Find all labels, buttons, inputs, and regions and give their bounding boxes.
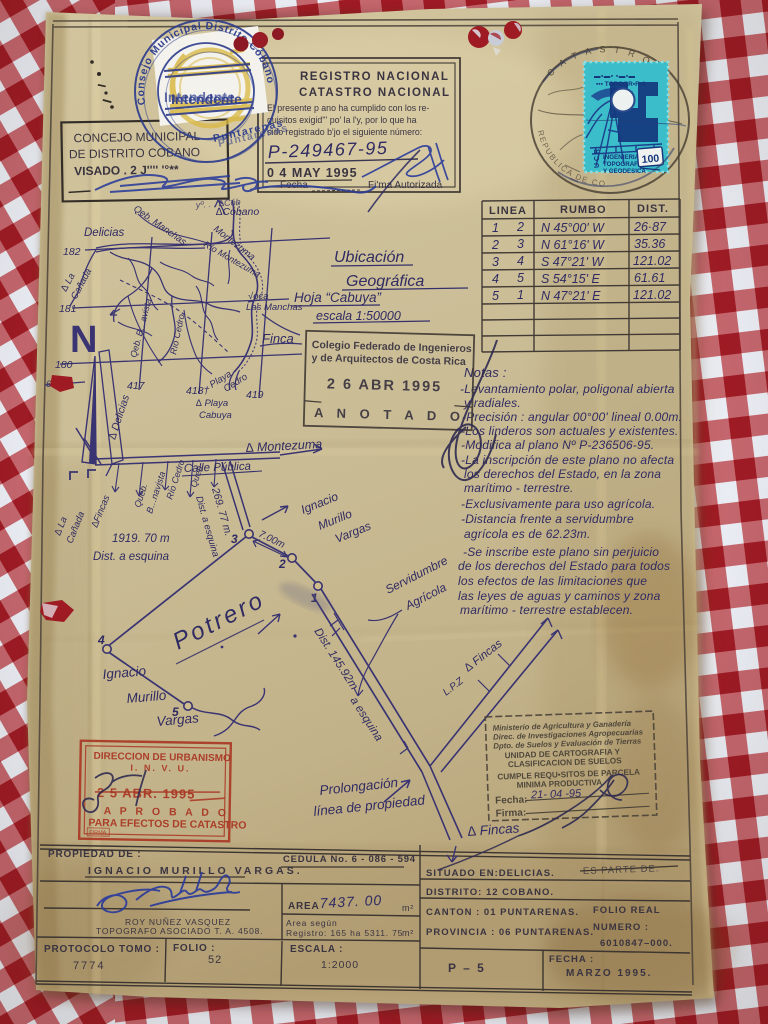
svg-text:N 45°00' W: N 45°00' W: [541, 221, 605, 235]
svg-text:las leyes de aguas y caminos y: las leyes de aguas y caminos y zona: [458, 589, 661, 603]
svg-text:PROVINCIA : 06 PUNTARENAS.: PROVINCIA : 06 PUNTARENAS.: [426, 927, 594, 938]
svg-text:5: 5: [517, 271, 524, 285]
svg-text:419: 419: [246, 389, 264, 401]
svg-text:418†: 418†: [186, 385, 210, 397]
svg-text:P-249467-95: P-249467-95: [267, 138, 388, 162]
svg-text:6: 6: [46, 379, 51, 389]
svg-text:417: 417: [127, 380, 146, 392]
svg-text:∆ Playa: ∆ Playa: [196, 398, 228, 409]
svg-text:INGENIERIA: INGENIERIA: [603, 154, 640, 161]
svg-text:Fecha:: Fecha:: [495, 795, 528, 807]
svg-text:SITUADO EN:DELICIAS.: SITUADO EN:DELICIAS.: [426, 868, 555, 879]
svg-text:2: 2: [278, 557, 286, 571]
svg-text:3: 3: [517, 237, 524, 251]
svg-text:26·87: 26·87: [633, 220, 667, 234]
svg-text:182: 182: [63, 246, 81, 258]
svg-text:FOLIO REAL: FOLIO REAL: [593, 905, 661, 916]
svg-text:MARZO 1995.: MARZO 1995.: [566, 968, 652, 979]
svg-text:7437. 00: 7437. 00: [319, 892, 382, 911]
svg-text:4: 4: [97, 633, 105, 647]
svg-text:CEDULA No. 6 - 086 - 594: CEDULA No. 6 - 086 - 594: [283, 854, 416, 865]
svg-text:1: 1: [517, 288, 524, 302]
svg-text:Cabuya: Cabuya: [199, 410, 232, 421]
svg-text:181: 181: [59, 303, 77, 315]
svg-text:CANTON : 01 PUNTARENAS.: CANTON : 01 PUNTARENAS.: [426, 907, 579, 918]
svg-text:61.61: 61.61: [634, 271, 665, 285]
svg-text:El presente p ano ha cumplido: El presente p ano ha cumplido con los re…: [267, 103, 429, 113]
svg-text:2: 2: [491, 238, 499, 252]
svg-text:m²: m²: [402, 928, 414, 938]
svg-text:121.02: 121.02: [633, 288, 671, 302]
svg-text:2 6 ABR 1995: 2 6 ABR 1995: [327, 376, 443, 395]
svg-text:7774: 7774: [73, 960, 105, 972]
svg-text:Delicias: Delicias: [84, 227, 125, 239]
svg-text:PROPIEDAD DE :: PROPIEDAD DE :: [48, 849, 141, 860]
svg-text:100: 100: [641, 152, 660, 165]
svg-text:FOLIO :: FOLIO :: [173, 943, 215, 954]
svg-text:sido registrado b'jo el siguie: sido registrado b'jo el siguiente número…: [267, 127, 422, 137]
svg-text:N 47°21' E: N 47°21' E: [541, 289, 601, 303]
svg-text:Intendente: Intendente: [171, 91, 242, 107]
svg-text:agrícola es de 62.23m.: agrícola es de 62.23m.: [464, 527, 590, 541]
svg-text:S 54°15' E: S 54°15' E: [541, 272, 600, 286]
svg-text:Y GEODESICA: Y GEODESICA: [603, 168, 646, 175]
svg-text:de los derechos del Estado par: de los derechos del Estado para todos: [458, 559, 670, 573]
svg-text:1: 1: [492, 221, 499, 235]
svg-text:52: 52: [208, 954, 222, 966]
svg-text:DISTRITO: 12 COBANO.: DISTRITO: 12 COBANO.: [426, 887, 554, 898]
svg-text:2: 2: [516, 220, 524, 234]
svg-text:los efectos de las limitacione: los efectos de las limitaciones que: [458, 574, 647, 588]
svg-text:U C R: U C R: [594, 149, 601, 168]
svg-text:marítimo - terrestre.: marítimo - terrestre.: [464, 481, 574, 495]
svg-text:ESCALA :: ESCALA :: [290, 944, 343, 955]
svg-text:∆Cóbano: ∆Cóbano: [216, 206, 259, 218]
svg-text:5: 5: [492, 289, 499, 303]
svg-text:Hoja “Cabuya”: Hoja “Cabuya”: [294, 290, 382, 305]
svg-text:▬▪▬▪ ▪▬▪▬: ▬▪▬▪ ▪▬▪▬: [594, 73, 636, 80]
svg-text:REGISTRO NACIONAL: REGISTRO NACIONAL: [300, 71, 449, 83]
svg-text:3: 3: [492, 255, 499, 269]
svg-text:35.36: 35.36: [634, 237, 665, 251]
svg-text:√oca: √oca: [248, 291, 269, 302]
svg-text:TOPOGRAFO ASOCIADO T. A. 4: TOPOGRAFO ASOCIADO T. A. 4508.: [96, 926, 263, 936]
svg-text:quisitos exigid''' po′ la l'y,: quisitos exigid''' po′ la l'y, por lo qu…: [267, 115, 417, 125]
svg-text:-Modifica al plano Nº P-236506: -Modifica al plano Nº P-236506-95.: [461, 438, 654, 452]
svg-text:los derechos del Estado, en la: los derechos del Estado, en la zona: [464, 467, 661, 481]
svg-text:FECHA :: FECHA :: [549, 954, 594, 965]
svg-text:S 47°21' W: S 47°21' W: [541, 255, 604, 269]
svg-text:CATASTRO NACIONAL: CATASTRO NACIONAL: [299, 87, 451, 99]
svg-text:NUMERO :: NUMERO :: [593, 922, 649, 933]
svg-text:N: N: [70, 319, 97, 361]
svg-text:-Distancia frente a servidumbr: -Distancia frente a servidumbre: [461, 512, 634, 526]
svg-text:-Los linderos son actuales y e: -Los linderos son actuales y existentes.: [461, 424, 678, 438]
svg-text:1:2000: 1:2000: [321, 959, 359, 971]
svg-text:I. N. V. U.: I. N. V. U.: [130, 763, 190, 774]
svg-text:6010847–000.: 6010847–000.: [600, 938, 673, 949]
svg-text:AREA: AREA: [288, 901, 320, 912]
svg-text:m²: m²: [402, 903, 414, 913]
svg-text:-Exclusivamente para uso agríc: -Exclusivamente para uso agrícola.: [461, 497, 655, 511]
svg-text:escala 1:50000: escala 1:50000: [316, 309, 401, 323]
svg-text:RUMBO: RUMBO: [560, 204, 607, 216]
svg-text:4: 4: [517, 254, 524, 268]
svg-text:4: 4: [492, 272, 499, 286]
svg-text:3: 3: [231, 532, 238, 546]
svg-text:Fi'ma Autorizada: Fi'ma Autorizada: [368, 180, 443, 191]
svg-text:1919. 70 m: 1919. 70 m: [112, 533, 170, 545]
svg-text:Ubicación: Ubicación: [334, 249, 404, 266]
svg-text:P – 5: P – 5: [448, 961, 486, 975]
svg-text:21- 04 -95: 21- 04 -95: [530, 788, 582, 802]
svg-text:-Levantamiento polar, poligona: -Levantamiento polar, poligonal abierta: [460, 382, 675, 396]
svg-text:▪▪▪ TOPOGR▪F▪A: ▪▪▪ TOPOGR▪F▪A: [596, 81, 646, 88]
svg-text:LINEA: LINEA: [489, 205, 527, 217]
svg-text:Dist. a esquina: Dist. a esquina: [93, 551, 169, 563]
svg-text:2 5 ABR. 1995: 2 5 ABR. 1995: [97, 785, 196, 802]
svg-text:Geográfica: Geográfica: [346, 273, 424, 290]
svg-text:DE DISTRITO COBANO: DE DISTRITO COBANO: [69, 145, 200, 161]
svg-text:N 61°16' W: N 61°16' W: [541, 238, 605, 252]
svg-text:FIRMA: FIRMA: [89, 830, 107, 836]
svg-text:-La inscripción de este plano: -La inscripción de este plano no afecta: [461, 453, 674, 467]
svg-text:121.02: 121.02: [633, 254, 671, 268]
svg-text:Area según: Area según: [286, 918, 337, 928]
svg-text:IGNACIO MURILLO VARGAS.: IGNACIO MURILLO VARGAS.: [88, 865, 303, 877]
svg-text:DIST.: DIST.: [637, 203, 669, 215]
svg-text:-Precisión : angular 00°00' l: -Precisión : angular 00°00' lineal 0.00m…: [462, 410, 682, 424]
svg-text:Las Manchas: Las Manchas: [246, 302, 303, 313]
svg-text:0 4 MAY 1995: 0 4 MAY 1995: [267, 166, 358, 180]
svg-text:Firma:: Firma:: [495, 808, 526, 820]
svg-text:marítimo - terrestre establece: marítimo - terrestre establecen.: [460, 603, 633, 617]
svg-text:Registro: 165 ha 5311. 75: Registro: 165 ha 5311. 75: [286, 928, 403, 938]
svg-text:PROTOCOLO TOMO :: PROTOCOLO TOMO :: [44, 944, 160, 955]
svg-text:-Se inscribe este plano sin pe: -Se inscribe este plano sin perjuicio: [463, 545, 659, 559]
